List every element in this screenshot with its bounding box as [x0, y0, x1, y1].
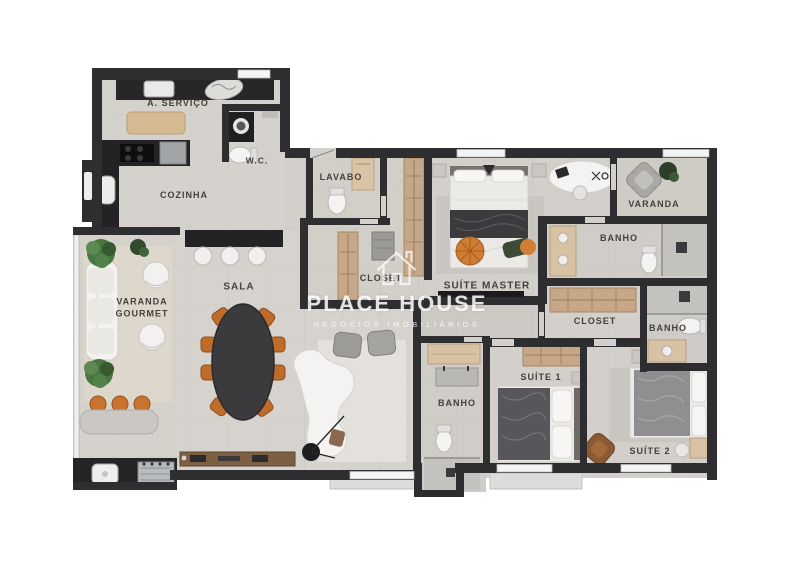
floor-plan-canvas: A. SERVIÇO W.C. COZINHA LAVABO CLOSET SU…: [0, 0, 800, 565]
tv-console: [180, 452, 295, 466]
living-set: [294, 330, 406, 462]
room-label-varanda: VARANDA: [628, 199, 679, 211]
ironing-mat: [127, 112, 185, 134]
varanda-gourmet-furniture: [74, 235, 172, 459]
room-label-cozinha: COZINHA: [160, 190, 208, 202]
room-label-sala: SALA: [223, 281, 254, 294]
room-label-banho-central: BANHO: [438, 398, 476, 410]
room-label-banho-suite-2: BANHO: [649, 323, 687, 335]
closet-2-wardrobe: [550, 288, 636, 312]
room-label-suite-1: SUÍTE 1: [520, 372, 561, 384]
room-label-varanda-gourmet: VARANDA GOURMET: [106, 296, 178, 319]
room-label-wc: W.C.: [246, 155, 268, 166]
room-label-lavabo: LAVABO: [320, 172, 363, 184]
room-label-closet-2: CLOSET: [574, 316, 617, 328]
room-label-servico: A. SERVIÇO: [147, 98, 209, 110]
room-label-suite-master: SUÍTE MASTER: [444, 280, 530, 293]
room-label-suite-2: SUÍTE 2: [629, 446, 670, 458]
room-label-banho-master: BANHO: [600, 233, 638, 245]
room-label-closet-master: CLOSET: [360, 273, 403, 285]
